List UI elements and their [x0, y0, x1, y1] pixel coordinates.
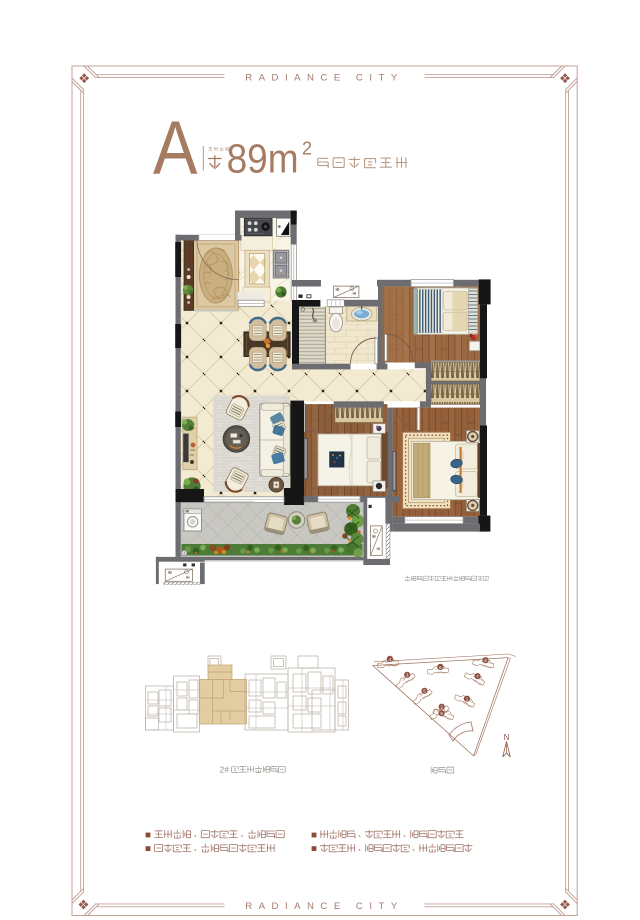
svg-text:9: 9	[440, 711, 443, 716]
svg-text:N: N	[504, 733, 510, 742]
svg-text:3: 3	[406, 673, 409, 678]
svg-text:5: 5	[423, 689, 426, 694]
svg-text:RADIANCE CITY: RADIANCE CITY	[245, 901, 404, 912]
svg-text:2#: 2#	[220, 765, 230, 775]
svg-text:RADIANCE CITY: RADIANCE CITY	[245, 73, 404, 84]
svg-text:89m: 89m	[227, 136, 299, 182]
svg-text:A: A	[153, 106, 198, 191]
svg-text:4: 4	[389, 657, 392, 662]
svg-text:1: 1	[466, 697, 469, 702]
svg-text:6: 6	[439, 665, 442, 670]
svg-text:2: 2	[302, 139, 312, 159]
svg-text:7: 7	[476, 674, 479, 679]
svg-text:8: 8	[484, 658, 487, 663]
